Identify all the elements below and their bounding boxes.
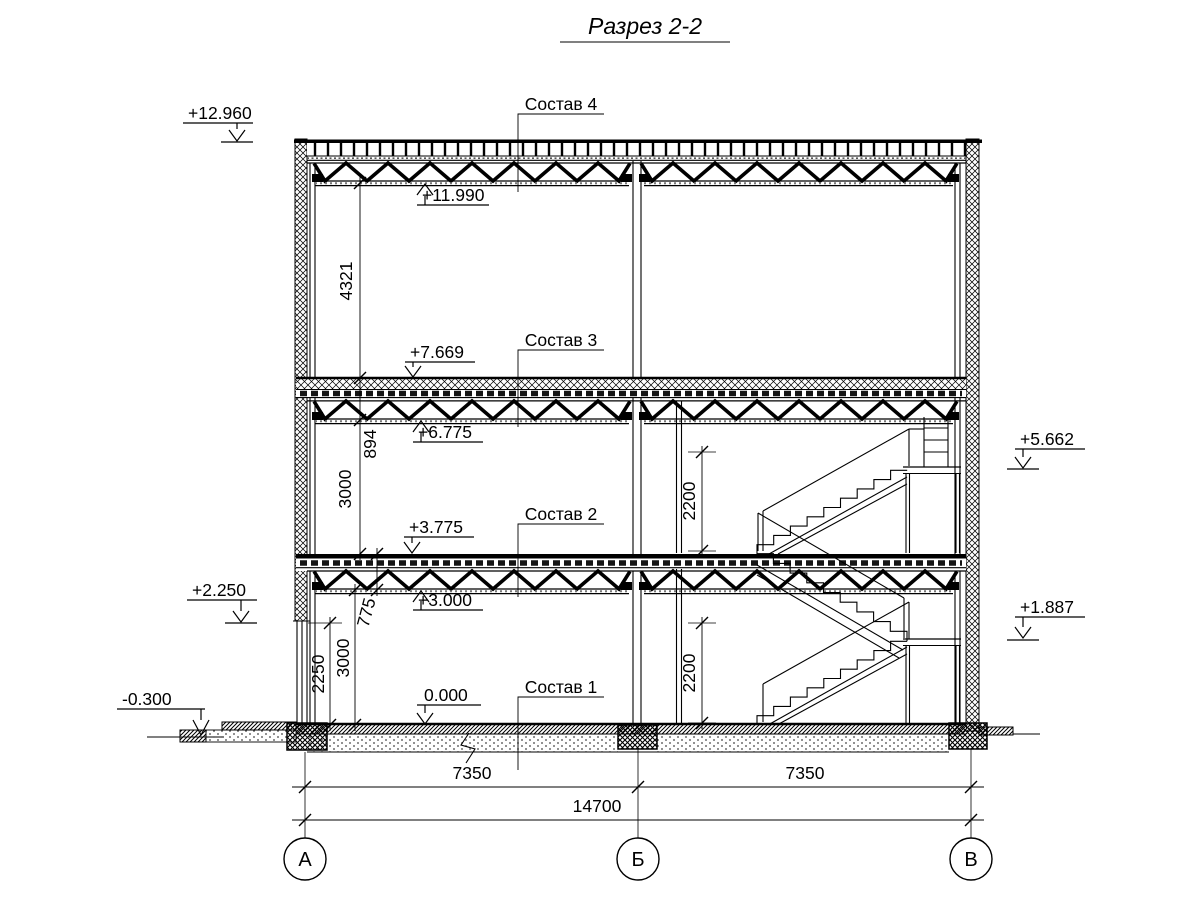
- elevation-value: -0.300: [122, 689, 172, 709]
- drawing-sheet: +12.960 -0.300 +2.250 0.000 +11.990 +7.6…: [0, 0, 1200, 900]
- dim-bay-right: 7350: [786, 763, 825, 783]
- drawing-title: Разрез 2-2: [560, 13, 730, 42]
- dim-roof-space: 4321: [336, 262, 356, 301]
- dim-truss2-zone: 775: [353, 596, 380, 629]
- roof-cap: [294, 140, 982, 144]
- elevation-mark-floor1: 0.000: [417, 685, 481, 724]
- composition-text: Состав 3: [525, 330, 598, 350]
- dim-total: 14700: [573, 796, 622, 816]
- vertical-dimensions-left: 4321 894 3000 775 2250 3000: [308, 177, 383, 731]
- column-axis-b: [633, 161, 641, 724]
- foundation-b: [618, 725, 657, 749]
- stair-flight-1: [757, 641, 907, 725]
- floor2-slab: [296, 554, 966, 571]
- dim-storey-lower: 3000: [333, 638, 353, 677]
- dim-truss3-zone: 894: [360, 429, 380, 458]
- ground-left: [147, 722, 296, 742]
- axis-bubble-v: В: [950, 838, 992, 880]
- foundation-v: [949, 723, 987, 749]
- elevation-value: +1.887: [1020, 597, 1074, 617]
- roof-ribs-band: [307, 143, 966, 156]
- axis-bubble-b: Б: [617, 838, 659, 880]
- elevation-value: +3.000: [418, 590, 472, 610]
- axis-bubble-a: А: [284, 838, 326, 880]
- floor3-slab: [296, 378, 966, 401]
- elevation-mark-floor2: +3.775: [404, 517, 474, 553]
- blind-area-left: [222, 722, 296, 730]
- roof-truss-right: [639, 163, 959, 186]
- elevation-value: +3.775: [409, 517, 463, 537]
- section-drawing-canvas: +12.960 -0.300 +2.250 0.000 +11.990 +7.6…: [0, 0, 1200, 900]
- dim-bay-left: 7350: [453, 763, 492, 783]
- composition-text: Состав 4: [525, 94, 598, 114]
- roof-access-ladder: [924, 417, 948, 467]
- column-axis-v: [955, 163, 960, 726]
- dim-wall-panel: 2250: [308, 654, 328, 693]
- column-axis-a: [310, 163, 315, 724]
- elevation-mark-panel-top: +2.250: [187, 580, 257, 623]
- horizontal-dimensions: 7350 7350 14700: [292, 749, 984, 838]
- wall-panel-right: [966, 139, 979, 731]
- elevation-value: +7.669: [410, 342, 464, 362]
- roof-structure: [294, 140, 982, 164]
- composition-text: Состав 2: [525, 504, 598, 524]
- composition-text: Состав 1: [525, 677, 598, 697]
- floor3-truss-right: [639, 401, 959, 424]
- elevation-mark-floor3: +7.669: [405, 342, 475, 377]
- elevation-value: +11.990: [422, 185, 485, 205]
- ground-right: [979, 727, 1040, 735]
- elevation-mark-ground: -0.300: [117, 689, 209, 735]
- elevation-mark-landing-lower: +1.887: [1007, 597, 1085, 640]
- dim-clearance-lower: 2200: [679, 653, 699, 692]
- dim-clearance-upper: 2200: [679, 481, 699, 520]
- foundation-a: [287, 723, 327, 750]
- composition-label-2: Состав 2: [518, 504, 604, 597]
- elevation-value: +12.960: [188, 103, 252, 123]
- stair-landing-upper: [903, 467, 961, 553]
- title-text: Разрез 2-2: [588, 13, 702, 39]
- elevation-mark-landing-upper: +5.662: [1007, 429, 1085, 469]
- elevation-mark-roof-parapet: +12.960: [183, 103, 253, 142]
- stair-flight-3: [757, 470, 907, 554]
- axis-letter: В: [964, 849, 977, 871]
- elevation-value: +2.250: [192, 580, 246, 600]
- elevation-value: +5.662: [1020, 429, 1074, 449]
- elevation-value: 0.000: [424, 685, 468, 705]
- floor2-truss-right: [639, 571, 959, 594]
- stair-landing-lower: [903, 639, 961, 724]
- wall-panel-left: [293, 139, 310, 724]
- axis-letter: А: [298, 849, 312, 871]
- axis-letter: Б: [631, 849, 644, 871]
- dim-storey-upper: 3000: [335, 469, 355, 508]
- elevation-value: +6.775: [418, 422, 472, 442]
- elevation-mark-roof-truss-bottom: +11.990: [417, 184, 489, 205]
